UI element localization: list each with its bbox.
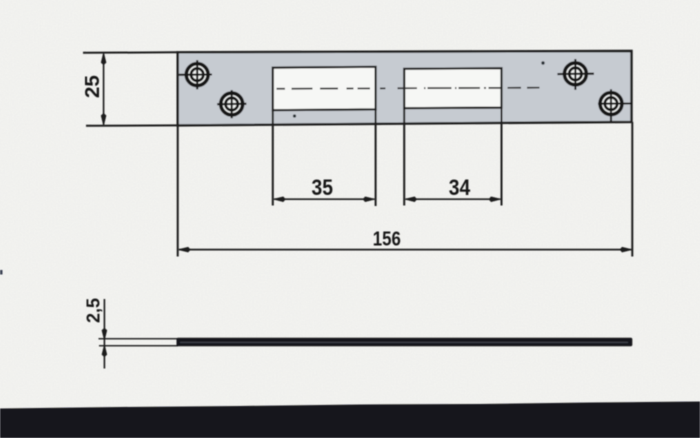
svg-text:25: 25 — [82, 75, 104, 98]
svg-text:2,5: 2,5 — [84, 298, 104, 323]
svg-text:156: 156 — [373, 228, 401, 250]
svg-text:35: 35 — [312, 175, 334, 200]
svg-text:34: 34 — [449, 175, 471, 200]
